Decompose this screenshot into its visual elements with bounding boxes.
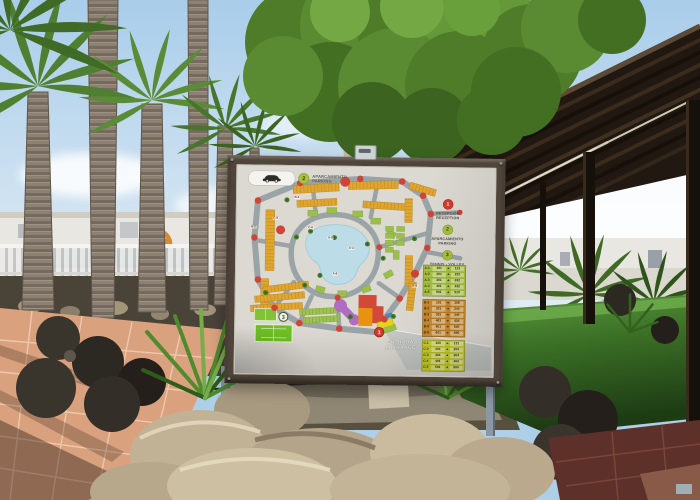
arrow-icon [446, 302, 450, 305]
header-title: APARCAMIENTO PARKING [312, 174, 347, 184]
screw-icon [499, 162, 502, 165]
resort-map-sign: 3 1 2 APARC [224, 155, 505, 387]
arrow-icon [446, 314, 450, 317]
block-label: B-2 [251, 225, 257, 228]
arrow-icon [446, 273, 450, 276]
car-pill [248, 170, 295, 186]
table-block-c: C-1100 121 C-2201 204 C-3301 304 [422, 340, 465, 372]
arrow-icon [446, 285, 450, 288]
table-row: A-5501 510 [424, 289, 464, 296]
table-block-a: A-1101 112 A-2201 232 A-3301 332 [423, 265, 466, 297]
table-block-b: B-1101 106 B-2201 240 B-3301 340 [422, 299, 466, 337]
arrow-icon [446, 279, 450, 282]
table-row: B-6601 606 [424, 330, 464, 337]
map-header: 2 APARCAMIENTO PARKING [248, 170, 347, 186]
legend-badge: 2 [442, 224, 453, 235]
arrow-icon [445, 342, 449, 345]
arrow-icon [445, 366, 449, 369]
arrow-icon [445, 326, 449, 329]
svg-text:3: 3 [282, 315, 285, 321]
sign-lamp [355, 145, 377, 160]
arrow-icon [445, 354, 449, 357]
parking-badge: 2 [298, 173, 309, 184]
screw-icon [231, 158, 234, 161]
drain-cover [676, 484, 692, 494]
svg-text:1: 1 [378, 330, 381, 336]
table-row: C-5501 504 [423, 364, 463, 371]
map-legend: 1 RECEPCIÓN RECEPTION 2 APARCAMIENTO PAR… [427, 199, 468, 271]
block-label: B-4 [294, 196, 300, 199]
block-label: A-5 [327, 236, 333, 239]
arrow-icon [445, 348, 449, 351]
reception-badge: 1 [374, 327, 384, 337]
block-label: A-6 [332, 273, 338, 276]
screw-icon [496, 381, 499, 384]
block-label: C-8 [273, 217, 279, 220]
tennis-badge: 3 [279, 312, 288, 321]
arrow-icon [446, 320, 450, 323]
legend-badge: 1 [443, 199, 454, 210]
arrow-icon [446, 291, 450, 294]
legend-badge: 3 [442, 250, 453, 261]
photo-resort-map-sign: 3 1 2 APARC [0, 0, 700, 500]
arrow-icon [445, 332, 449, 335]
block-label: A-4 [348, 247, 354, 250]
entrance-label: ENTRADA ENTRANCE [373, 339, 428, 352]
arrow-icon [446, 267, 450, 270]
block-label: C-6 [308, 226, 314, 229]
unit-number-table: A-1101 112 A-2201 232 A-3301 332 [422, 265, 467, 375]
screw-icon [227, 377, 230, 380]
legend-item: 2 APARCAMIENTO PARKING [427, 224, 467, 246]
map-panel: 3 1 2 APARC [234, 164, 497, 378]
block-label: B-6 [412, 285, 418, 288]
arrow-icon [445, 360, 449, 363]
legend-item: 1 RECEPCIÓN RECEPTION [428, 199, 468, 221]
car-icon [262, 174, 282, 183]
arrow-icon [446, 308, 450, 311]
